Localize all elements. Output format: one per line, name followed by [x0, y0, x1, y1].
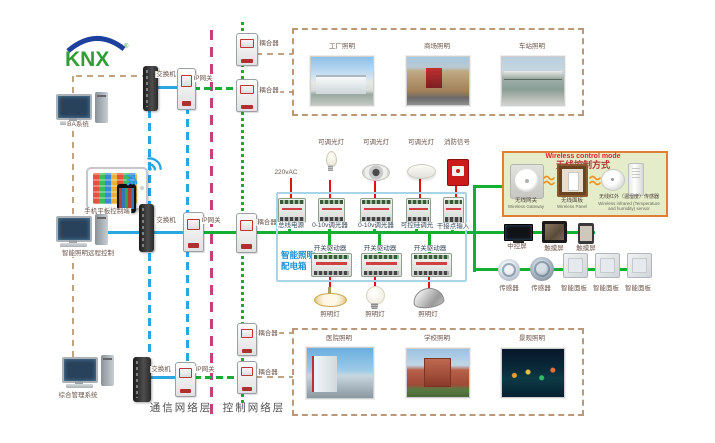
lan-link-mid: [152, 231, 184, 234]
knx-branch-wireless: [473, 185, 504, 188]
dimmable-lamp-label: 可调光灯: [317, 139, 345, 146]
wireless-sensor-stick-icon: [628, 163, 644, 196]
wireless-gateway-icon: [510, 164, 544, 199]
switch-actuator-module: [411, 253, 452, 277]
lan-link-top: [157, 86, 179, 89]
wireless-panel-icon: [557, 164, 588, 197]
switch-actuator-label: 开关驱动器: [413, 245, 448, 252]
dimmer-module: [318, 198, 345, 223]
coupler-icon: [236, 213, 257, 253]
hospital-caption: 医院照明: [325, 335, 353, 342]
knx-logo-reg: ®: [124, 43, 129, 50]
management-computer: [62, 355, 114, 389]
remote-control-label: 智能照明远程控制: [61, 250, 115, 257]
coupler-label: 耦合器: [256, 219, 278, 226]
ceiling-light-icon: [314, 287, 346, 307]
switch-actuator-label: 开关驱动器: [313, 245, 348, 252]
coupler-icon: [236, 33, 258, 66]
coupler-box-stub-1: [256, 53, 293, 55]
network-switch-icon: [139, 204, 154, 252]
lan-link-bottom: [150, 376, 176, 379]
knx-logo-text: KNX: [65, 48, 109, 70]
switch-label: 交换机: [155, 217, 177, 224]
dimmer-module: [360, 198, 393, 223]
wireless-sensor-label-zh: 无线红外（温湿度）传感器: [598, 195, 660, 201]
sensor-icon: [498, 259, 520, 281]
wireless-panel-label-en: Wireless Panel: [556, 204, 588, 209]
lamp-label: 照明灯: [364, 311, 386, 318]
triac-dimmer-module: [406, 198, 431, 223]
management-link-top: [76, 75, 144, 77]
comm-layer-label: 通信网络层: [149, 402, 214, 414]
bulb-icon: [366, 286, 384, 309]
coupler-label: 耦合器: [258, 40, 280, 47]
wireless-signal-icon: [543, 174, 555, 187]
ip-gateway-label: IP网关: [192, 75, 213, 82]
wireless-gateway-label-en: Wireless Gateway: [507, 204, 545, 209]
switch-label: 交换机: [150, 366, 172, 373]
downlight-icon: [362, 164, 390, 181]
smart-panel-label: 智能面板: [592, 285, 620, 292]
touch-screen-icon: [542, 221, 567, 243]
switch-label: 交换机: [155, 71, 177, 78]
wireless-sensor-label-en: Wireless infrared (Temperature and humid…: [597, 201, 661, 212]
monitor-icon: [62, 357, 98, 383]
dimmable-lamp-label: 可调光灯: [407, 139, 435, 146]
sensor-label: 传感器: [498, 285, 520, 292]
wifi-icon: [140, 148, 170, 176]
triac-dimmer-label: 可控硅调光: [400, 222, 435, 229]
dimmer-label: 0-10v调光器: [311, 222, 349, 229]
smart-panel-label: 智能面板: [624, 285, 652, 292]
sensor-icon: [530, 257, 554, 281]
fire-alarm-icon: [447, 159, 469, 186]
switch-actuator-module: [311, 253, 352, 277]
lamp-label: 照明灯: [417, 311, 439, 318]
dimmer-label: 0-10v调光器: [357, 222, 395, 229]
touch-screen-label: 触摸屏: [543, 245, 565, 252]
knx-lighting-system-diagram: KNX ® BA系统 手机平板控制端 智能照明远程控制 综合管理系统 交换机 交…: [0, 0, 715, 443]
ip-gateway-icon: [175, 362, 196, 397]
touch-screen-label: 触摸屏: [575, 245, 597, 252]
bus-power-module: [278, 198, 306, 223]
pc-tower-icon: [101, 355, 114, 386]
wifi-icon: [120, 167, 144, 190]
cabinet-title-line1: 智能照明: [281, 250, 315, 261]
smart-panel-icon: [563, 253, 588, 278]
mall-caption: 商场照明: [423, 43, 451, 50]
touch-screen-icon: [578, 223, 594, 244]
wireless-signal-icon: [589, 174, 601, 187]
coupler-label: 耦合器: [257, 330, 279, 337]
factory-caption: 工厂照明: [328, 43, 356, 50]
dimmable-lamp-icon: [325, 151, 336, 171]
smart-panel-label: 智能面板: [560, 285, 588, 292]
coupler-icon: [237, 361, 257, 394]
ctrl-layer-label: 控制网络层: [222, 402, 287, 414]
monitor-icon: [56, 216, 92, 242]
station-caption: 车站照明: [518, 43, 546, 50]
hospital-photo: [306, 347, 374, 399]
network-switch-icon: [133, 357, 151, 402]
cabinet-title-line2: 配电箱: [281, 261, 315, 272]
pc-tower-icon: [95, 214, 108, 245]
bus-power-label: 总线电源: [277, 222, 305, 229]
dry-contact-label: 干接点输入: [436, 223, 471, 230]
landscape-caption: 景观照明: [518, 335, 546, 342]
knx-logo: KNX ®: [62, 34, 130, 70]
school-photo: [406, 348, 470, 398]
school-caption: 学校照明: [423, 335, 451, 342]
smart-panel-icon: [595, 253, 620, 278]
mall-photo: [406, 56, 470, 106]
central-screen-icon: [504, 224, 533, 241]
coupler-icon: [236, 79, 258, 112]
ip-gateway-label: IP网关: [200, 217, 221, 224]
dry-contact-module: [443, 197, 464, 224]
sensor-label: 传感器: [530, 285, 552, 292]
wireless-sensor-disc-icon: [601, 169, 625, 191]
knx-branch-vertical: [473, 186, 476, 272]
knx-line-bottom: [194, 376, 239, 379]
ip-gateway-label: IP网关: [194, 366, 215, 373]
central-screen-label: 中控屏: [506, 243, 528, 250]
coupler-icon: [237, 323, 257, 356]
management-label: 综合管理系统: [58, 392, 99, 399]
remote-control-computer: [56, 214, 108, 248]
knx-line-top: [193, 87, 238, 90]
coupler-label: 耦合器: [258, 87, 280, 94]
switch-actuator-module: [361, 253, 402, 277]
ceiling-lamp-icon: [407, 164, 436, 179]
fire-signal-label: 消防信号: [443, 139, 471, 146]
pc-tower-icon: [95, 92, 108, 123]
factory-photo: [310, 56, 374, 106]
landscape-photo: [501, 348, 565, 398]
lamp-label: 照明灯: [319, 311, 341, 318]
monitor-icon: [56, 94, 92, 120]
wall-lamp-icon: [412, 286, 445, 310]
smart-panel-icon: [627, 253, 652, 278]
station-photo: [501, 56, 565, 106]
switch-actuator-label: 开关驱动器: [363, 245, 398, 252]
dimmable-lamp-label: 可调光灯: [362, 139, 390, 146]
ba-system-label: BA系统: [66, 121, 90, 128]
power-in-label: 220vAC: [273, 169, 298, 176]
coupler-label: 耦合器: [257, 369, 279, 376]
